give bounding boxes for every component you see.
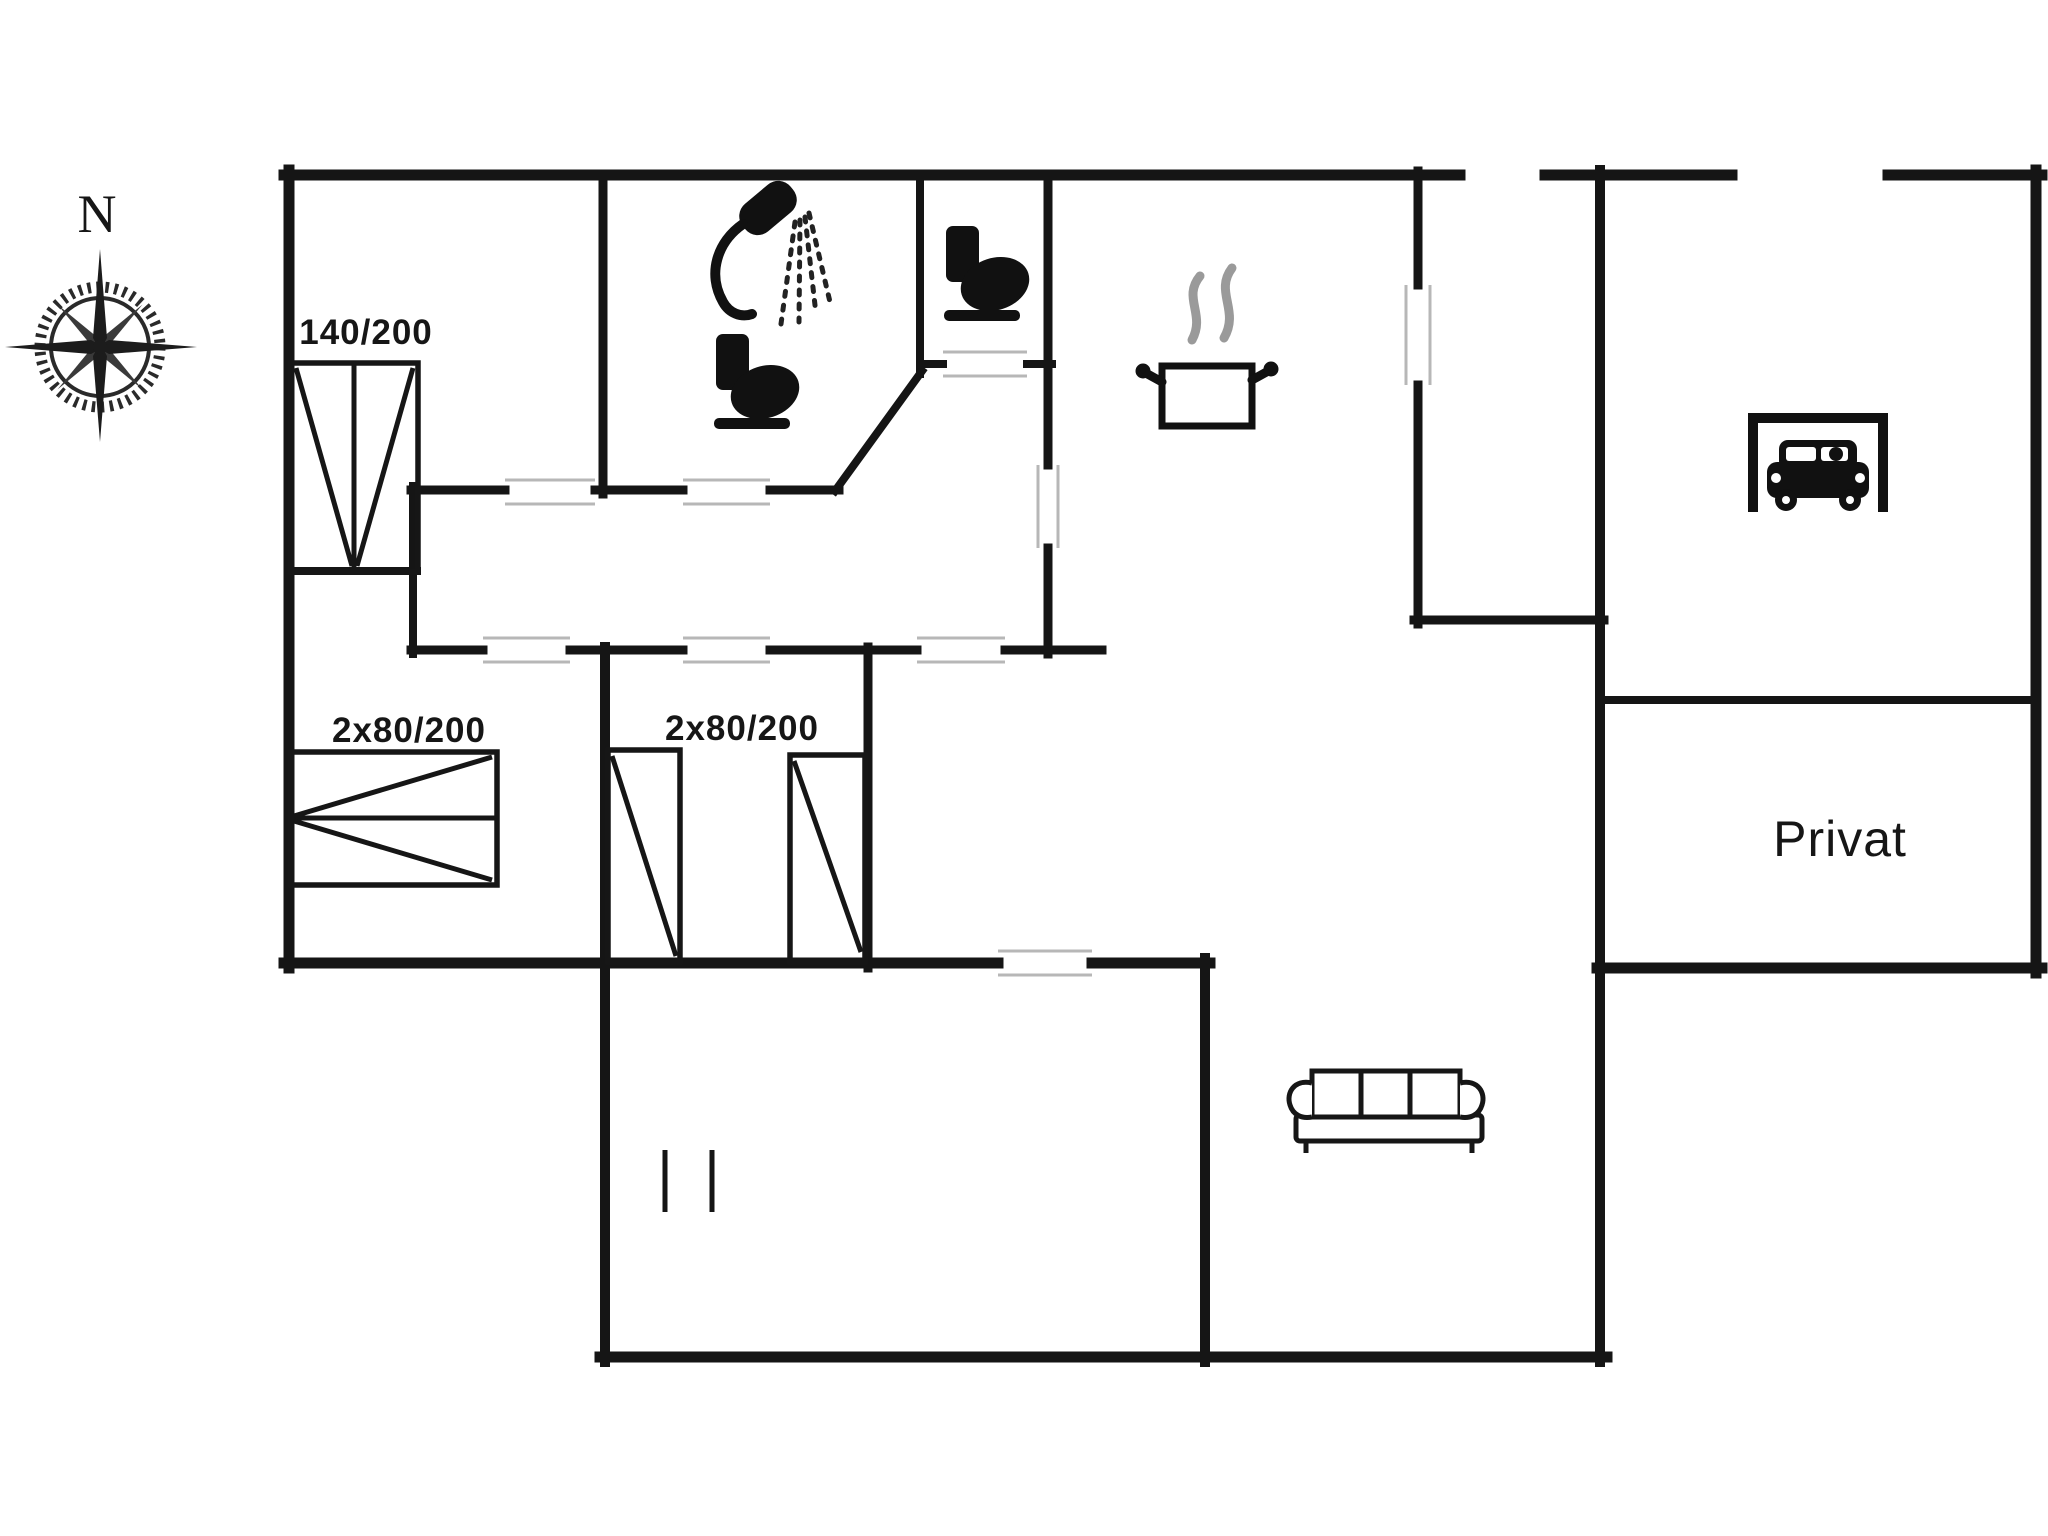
floor-plan-canvas: N [0, 0, 2048, 1536]
walls-layer [284, 170, 2042, 1362]
shower-icon [715, 174, 830, 324]
furniture-outline-layer [291, 363, 865, 962]
toilet-icon-wc [944, 226, 1036, 321]
bed-detail-line [294, 757, 492, 816]
wall-segment [835, 371, 922, 491]
bed-detail-line [357, 368, 413, 566]
bed-size-label-140-200: 140/200 [299, 313, 433, 352]
floor-plan: N [0, 0, 2048, 1536]
north-label: N [78, 184, 117, 244]
private-room-label: Privat [1773, 811, 1907, 867]
bed-detail-line [296, 368, 352, 566]
sofa-icon [1289, 1071, 1483, 1153]
bed-detail-line [294, 821, 492, 880]
bed-size-label-2x80-200-left: 2x80/200 [332, 711, 486, 750]
door-opening-marks [483, 285, 1430, 975]
compass-rose-icon [5, 249, 197, 442]
bed-detail-line [794, 761, 861, 952]
step-marks [665, 1150, 712, 1212]
cooking-pot-icon [1138, 268, 1276, 426]
bed-size-label-2x80-200-middle: 2x80/200 [665, 709, 819, 748]
car-garage-icon [1753, 418, 1883, 512]
toilet-icon-bathroom [714, 334, 806, 429]
bed-detail-line [612, 756, 676, 956]
